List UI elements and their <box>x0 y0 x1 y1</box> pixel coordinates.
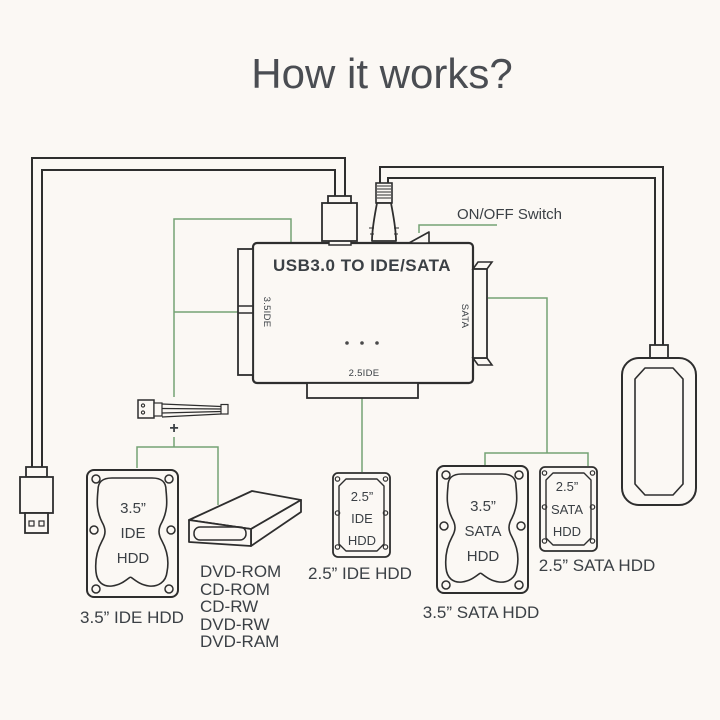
power-adapter-brick <box>622 345 696 505</box>
hdd-sata25-size: 2.5” <box>556 479 578 494</box>
hdd-sata25-type: HDD <box>553 524 581 539</box>
ide25-port <box>307 383 418 398</box>
hdd-ide35-bus: IDE <box>120 525 145 542</box>
ide25-port-label: 2.5IDE <box>349 368 380 379</box>
hdd-ide35-type: HDD <box>117 550 150 567</box>
hdd-sata35-caption: 3.5” SATA HDD <box>423 603 540 622</box>
how-it-works-diagram: How it works? <box>0 0 720 720</box>
hdd-sata35-type: HDD <box>467 548 500 565</box>
brick-body <box>622 358 696 505</box>
usb-a-collar <box>26 467 47 477</box>
page-title: How it works? <box>251 50 512 97</box>
hdd-ide35-size: 3.5” <box>120 500 146 517</box>
hdd-ide25-caption: 2.5” IDE HDD <box>308 564 412 583</box>
hdd-ide35-caption: 3.5” IDE HDD <box>80 608 184 627</box>
onoff-switch-label: ON/OFF Switch <box>457 206 562 223</box>
usb-a-connector <box>20 467 53 533</box>
usb-plug <box>322 196 357 245</box>
adapter-label: USB3.0 TO IDE/SATA <box>273 256 451 275</box>
hdd-ide25-size: 2.5” <box>351 489 373 504</box>
plus-sign: + <box>169 420 178 437</box>
ide-port <box>238 249 253 375</box>
optical-item: DVD-ROM <box>200 562 281 581</box>
hdd-sata25-bus: SATA <box>551 502 583 517</box>
hdd-sata35-bus: SATA <box>465 523 502 540</box>
diagram-canvas: How it works? <box>0 0 720 720</box>
optical-item: DVD-RAM <box>200 632 279 651</box>
adapter-box: USB3.0 TO IDE/SATA 3.5IDE SATA 2.5IDE <box>238 232 492 398</box>
optical-item: CD-RW <box>200 597 258 616</box>
hdd-ide25-type: HDD <box>348 533 376 548</box>
hdd-sata25-caption: 2.5” SATA HDD <box>539 556 656 575</box>
brick-inlet <box>650 345 668 359</box>
sata-port-label: SATA <box>459 304 470 329</box>
hdd-sata35-size: 3.5” <box>470 498 496 515</box>
hdd-ide25-bus: IDE <box>351 511 373 526</box>
ide-port-label: 3.5IDE <box>261 297 272 328</box>
usb-a-body <box>20 477 53 513</box>
